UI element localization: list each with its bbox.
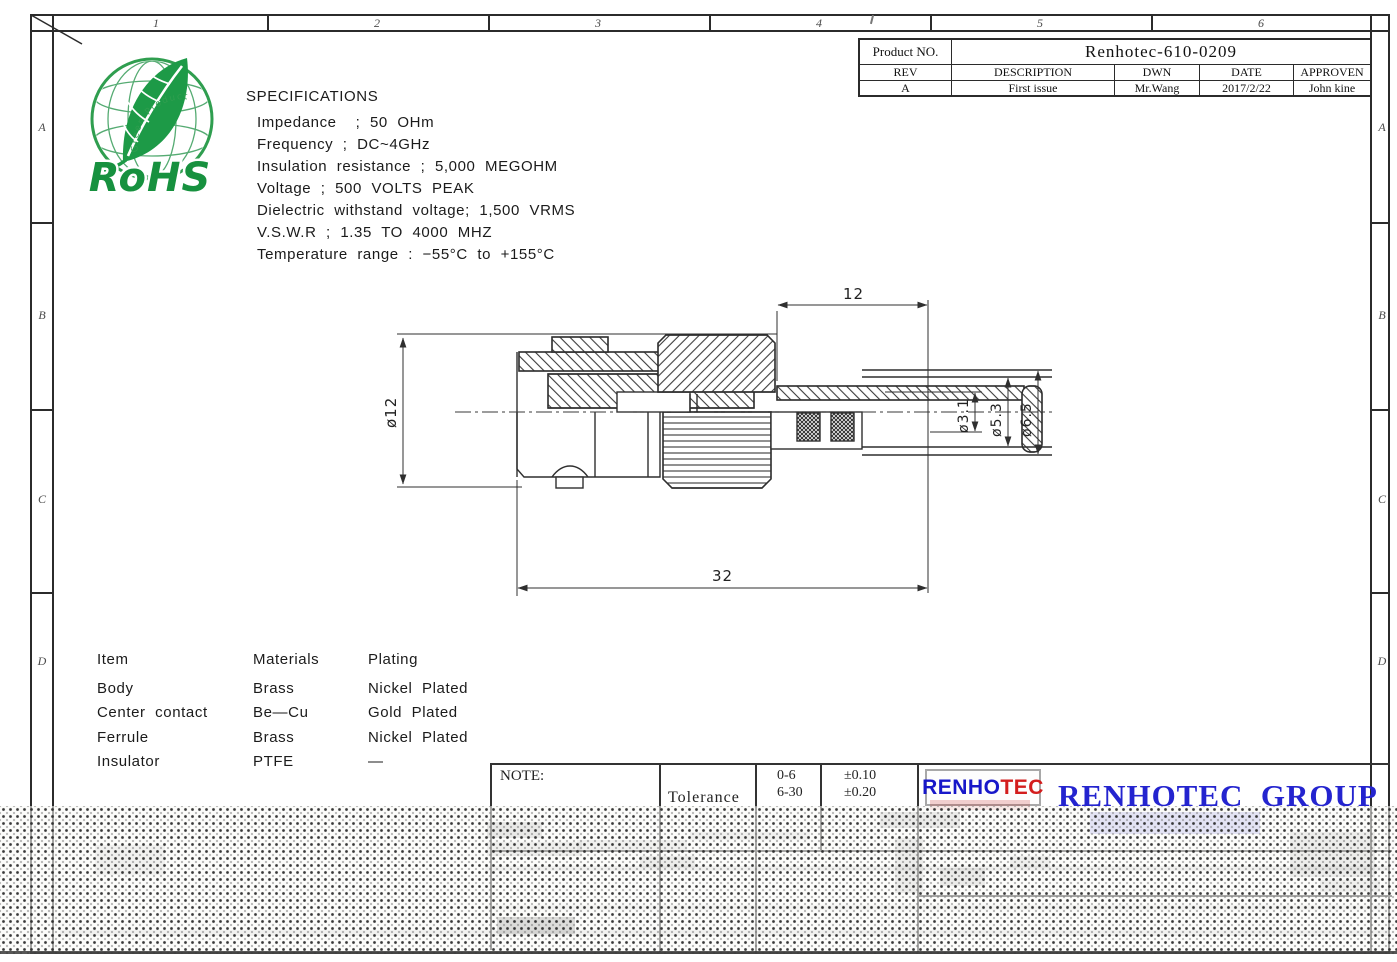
logo-text-blue: RENHO (922, 776, 1000, 800)
cell-plating: Nickel Plated (368, 677, 468, 702)
zone-letter: D (32, 654, 52, 669)
cell-material: Brass (253, 726, 368, 751)
dim-12: 12 (843, 285, 864, 303)
zone-number: 2 (367, 16, 387, 31)
specifications: SPECIFICATIONS Impedance ; 50 OHm Freque… (246, 88, 575, 266)
spec-dielectric: Dielectric withstand voltage; 1,500 VRMS (246, 200, 575, 222)
dim-32: 32 (712, 567, 733, 585)
logo-text-red: TEC (1000, 776, 1044, 800)
zone-number: 3 (588, 16, 608, 31)
corner-diagonal (28, 12, 86, 48)
zone-tick (1151, 14, 1153, 31)
dim-d53: ø5.3 (989, 402, 1005, 437)
cell-plating: Gold Plated (368, 701, 458, 726)
zone-tick (30, 592, 53, 594)
dim-d31: ø3.1 (956, 398, 972, 433)
zone-number: 1 (146, 16, 166, 31)
spec-vswr: V.S.W.R ; 1.35 TO 4000 MHZ (246, 222, 575, 244)
zone-tick (1370, 409, 1390, 411)
zone-tick (1370, 222, 1390, 224)
zone-letter: A (32, 120, 52, 135)
header-description: DESCRIPTION (952, 65, 1115, 81)
cell-material: PTFE (253, 750, 368, 775)
zone-tick (30, 409, 53, 411)
zone-tick (267, 14, 269, 31)
stray-mark (870, 15, 874, 24)
spec-insulation: Insulation resistance ; 5,000 MEGOHM (246, 156, 575, 178)
scan-glitch-overlay (0, 806, 1397, 954)
header-approven: APPROVEN (1294, 65, 1370, 81)
materials-table: Item Materials Plating Body Brass Nickel… (97, 648, 468, 775)
col-materials: Materials (253, 648, 368, 673)
header-dwn: DWN (1115, 65, 1200, 81)
description-value: First issue (952, 81, 1115, 96)
header-rev: REV (860, 65, 952, 81)
date-value: 2017/2/22 (1200, 81, 1294, 96)
zone-tick (488, 14, 490, 31)
dim-d65: ø6.5 (1019, 402, 1035, 437)
cell-plating: — (368, 750, 384, 775)
zone-letter: C (1372, 492, 1392, 507)
zone-tick (930, 14, 932, 31)
dim-d12: ø12 (382, 397, 400, 428)
cell-material: Brass (253, 677, 368, 702)
rohs-logo: Green Product RoHS (82, 52, 224, 202)
title-block: Product NO. Renhotec-610-0209 REV DESCRI… (858, 38, 1372, 97)
zone-letter: B (32, 308, 52, 323)
approven-value: John kine (1294, 81, 1370, 96)
zone-tick (709, 14, 711, 31)
tolerance-range: 6-30 (777, 785, 803, 801)
zone-letter: C (32, 492, 52, 507)
table-row: Body Brass Nickel Plated (97, 677, 468, 702)
materials-header-row: Item Materials Plating (97, 648, 468, 673)
note-label: NOTE: (500, 768, 544, 785)
col-item: Item (97, 648, 253, 673)
spec-impedance: Impedance ; 50 OHm (246, 112, 575, 134)
drawing-sheet: 1 2 3 4 5 6 A B C D A B C D Green Produc… (0, 0, 1397, 962)
cell-item: Body (97, 677, 253, 702)
header-date: DATE (1200, 65, 1294, 81)
connector-section-drawing: 12 32 ø12 ø3.1 ø5.3 ø6.5 (380, 275, 1070, 605)
specifications-title: SPECIFICATIONS (246, 88, 575, 105)
tolerance-value: ±0.10 (844, 768, 876, 784)
zone-letter: D (1372, 654, 1392, 669)
table-row: Insulator PTFE — (97, 750, 468, 775)
cell-item: Ferrule (97, 726, 253, 751)
zone-number: 6 (1251, 16, 1271, 31)
rohs-title: RoHS (89, 155, 212, 201)
table-row: Ferrule Brass Nickel Plated (97, 726, 468, 751)
rev-value: A (860, 81, 952, 96)
zone-number: 4 (809, 16, 829, 31)
zone-letter: B (1372, 308, 1392, 323)
cell-item: Center contact (97, 701, 253, 726)
product-no-label: Product NO. (860, 40, 952, 65)
tolerance-value: ±0.20 (844, 785, 876, 801)
zone-letter: A (1372, 120, 1392, 135)
zone-tick (30, 222, 53, 224)
spec-temperature: Temperature range : −55°C to +155°C (246, 244, 575, 266)
dwn-value: Mr.Wang (1115, 81, 1200, 96)
zone-number: 5 (1030, 16, 1050, 31)
cell-material: Be—Cu (253, 701, 368, 726)
tolerance-label: Tolerance (668, 789, 740, 807)
tolerance-range: 0-6 (777, 768, 796, 784)
product-no-value: Renhotec-610-0209 (952, 40, 1370, 65)
spec-voltage: Voltage ; 500 VOLTS PEAK (246, 178, 575, 200)
cell-item: Insulator (97, 750, 253, 775)
table-row: Center contact Be—Cu Gold Plated (97, 701, 468, 726)
col-plating: Plating (368, 648, 418, 673)
zone-tick (1370, 592, 1390, 594)
spec-frequency: Frequency ; DC~4GHz (246, 134, 575, 156)
cell-plating: Nickel Plated (368, 726, 468, 751)
